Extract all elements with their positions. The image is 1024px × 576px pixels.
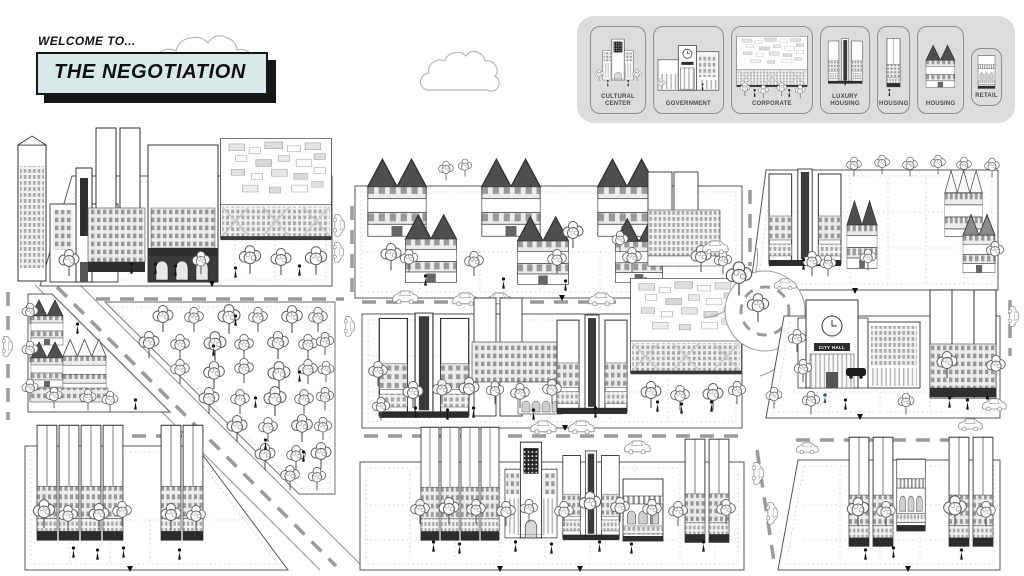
title-area: WELCOME TO... THE NEGOTIATION — [36, 34, 268, 95]
legend-card-housing-gabled: HOUSING — [917, 26, 964, 114]
legend-card-corporate: CORPORATE — [731, 26, 813, 114]
legend-label: RETAIL — [975, 93, 997, 100]
block-bottom-right — [778, 437, 1000, 572]
block-top-left — [18, 128, 332, 287]
housing-gabled-icon — [920, 32, 961, 100]
legend-label: CULTURAL CENTER — [593, 94, 643, 108]
legend-label: GOVERNMENT — [666, 101, 711, 108]
luxury-housing-building — [769, 169, 841, 266]
legend-card-housing-tower: HOUSING — [877, 26, 910, 114]
legend-label: HOUSING — [879, 101, 908, 108]
luxury-housing-icon — [823, 32, 867, 93]
legend-label: HOUSING — [926, 101, 955, 108]
office-slab-building — [18, 136, 46, 281]
office-towers — [930, 290, 996, 398]
legend-card-luxury-housing: LUXURY HOUSING — [820, 26, 870, 114]
page-title: THE NEGOTIATION — [54, 61, 246, 83]
luxury-housing-building — [379, 313, 468, 418]
gabled-housing-building — [945, 171, 983, 237]
housing-tower-icon — [880, 32, 907, 100]
housing-slabs — [88, 128, 145, 272]
corporate-icon — [734, 32, 810, 100]
legend-card-retail: RETAIL — [971, 48, 1002, 106]
block-bottom-center — [360, 421, 744, 572]
government-icon — [656, 32, 721, 100]
corporate-building — [631, 278, 742, 374]
cultural-center-building — [505, 442, 557, 538]
corporate-building — [221, 138, 332, 240]
retail-building — [897, 459, 926, 531]
legend-label: CORPORATE — [752, 101, 792, 108]
legend-panel: CULTURAL CENTER GOVERNMENT CORPORATE — [577, 16, 1015, 123]
block-top-right — [750, 155, 1004, 296]
poster: CITY HALL — [0, 0, 1024, 576]
legend-card-government: GOVERNMENT — [653, 26, 724, 114]
city-hall-sign: CITY HALL — [819, 345, 845, 350]
luxury-housing-building — [557, 315, 627, 414]
legend-label: LUXURY HOUSING — [823, 94, 867, 108]
title-box: THE NEGOTIATION — [36, 52, 268, 95]
housing-towers — [37, 425, 203, 540]
cultural-center-icon — [593, 32, 643, 93]
welcome-label: WELCOME TO... — [38, 34, 268, 48]
gabled-housing-building — [63, 339, 106, 389]
legend-card-cultural-center: CULTURAL CENTER — [590, 26, 646, 114]
retail-icon — [974, 54, 999, 92]
